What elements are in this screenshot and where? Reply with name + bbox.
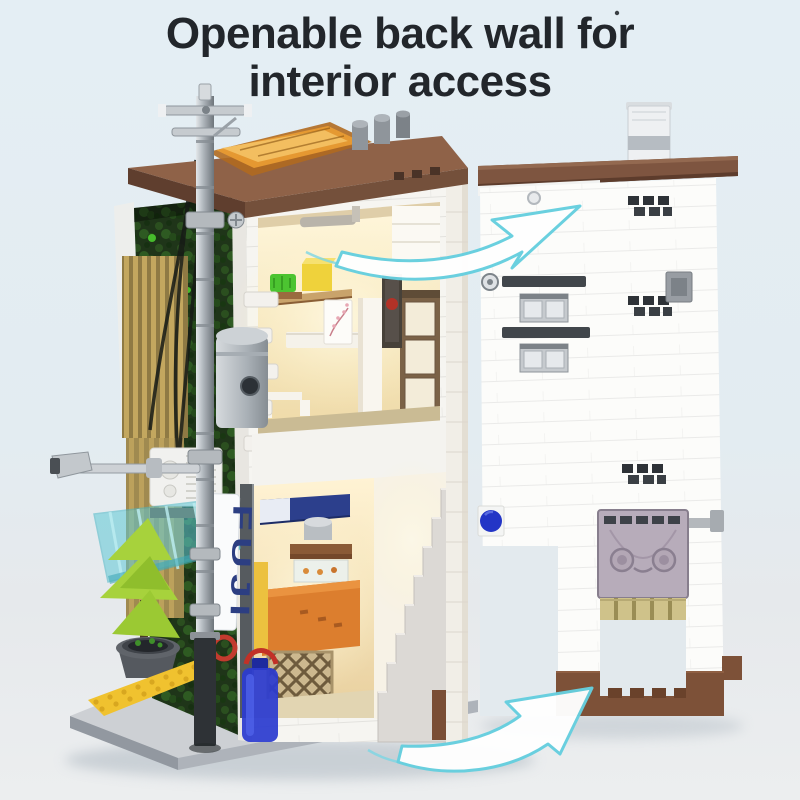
wall-window-1 [520, 294, 568, 322]
pole-clamp-mid [188, 450, 222, 464]
framed-picture [382, 274, 402, 348]
back-door-opening [480, 546, 558, 716]
pole-transformer [216, 327, 268, 428]
shop-counter [290, 544, 352, 582]
wall-screw-top [528, 192, 540, 204]
small-table [268, 392, 302, 400]
orange-platform [262, 580, 360, 656]
product-image: Openable back wall for interior access [0, 0, 800, 800]
wall-hinge-left [482, 274, 498, 290]
wall-dark-bar-1 [502, 276, 586, 287]
pole-clamp-upper [186, 212, 244, 228]
white-cabinet [392, 206, 440, 260]
back-wall-panel [478, 102, 742, 716]
stair-newel-post [432, 690, 446, 740]
title-dot [615, 11, 619, 15]
chimney-vent [626, 102, 672, 168]
scene-illustration: FUJI [0, 0, 800, 800]
blue-knob [478, 506, 504, 536]
cherry-blossom-art [324, 300, 352, 344]
garage-opening [600, 620, 686, 698]
silver-pot [304, 517, 332, 540]
fuji-banner-text: FUJI [224, 504, 257, 623]
shutter-slats [600, 598, 686, 620]
wall-gray-plate [666, 272, 692, 302]
wall-dark-bar-2 [502, 327, 590, 338]
pole-top-cap [199, 84, 211, 100]
wall-window-2 [520, 344, 568, 372]
